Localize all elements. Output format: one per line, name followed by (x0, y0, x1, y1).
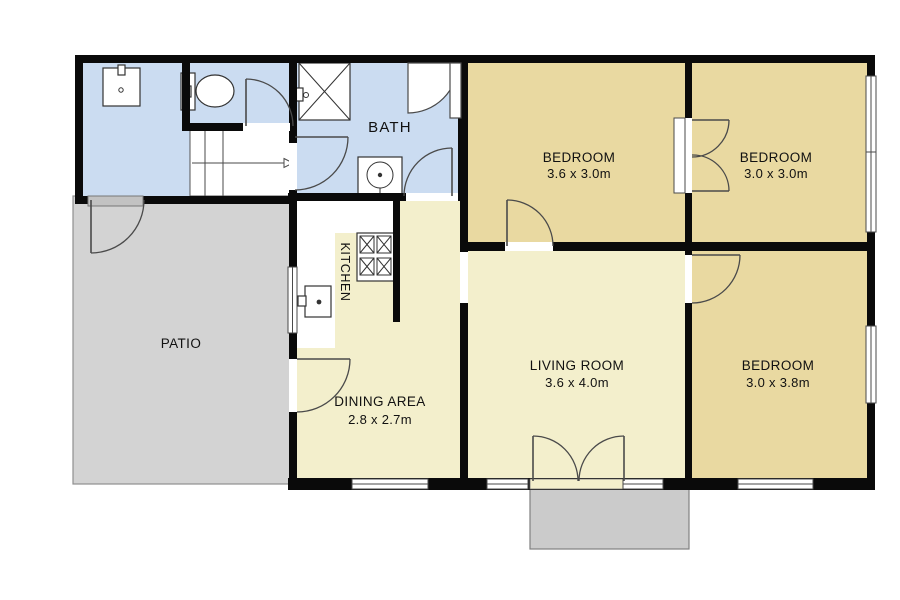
kitchen-label: KITCHEN (338, 242, 352, 301)
bedroom1-label: BEDROOM (543, 150, 616, 165)
bedroom3-side-window (866, 326, 876, 403)
living-window-right (623, 479, 663, 489)
porch-step (530, 487, 689, 549)
floor-plan-canvas: BATH BEDROOM 3.6 x 3.0m BEDROOM 3.0 x 3.… (0, 0, 900, 600)
laundry-door-step (88, 196, 143, 206)
bedroom2-label: BEDROOM (740, 150, 813, 165)
bedroom2-dimensions: 3.0 x 3.0m (744, 166, 808, 181)
shower-icon (296, 63, 350, 120)
bath-label: BATH (368, 119, 412, 136)
patio-label: PATIO (161, 336, 202, 351)
living-window-left (487, 479, 528, 489)
living-room-label: LIVING ROOM (530, 358, 624, 373)
floor-plan: BATH BEDROOM 3.6 x 3.0m BEDROOM 3.0 x 3.… (0, 0, 900, 600)
bedroom2-window (866, 76, 876, 232)
stove-icon (357, 233, 394, 281)
washing-machine-icon (358, 157, 402, 196)
dining-window (352, 479, 428, 489)
bedroom1-dimensions: 3.6 x 3.0m (547, 166, 611, 181)
kitchen-window (288, 267, 297, 333)
living-room-dimensions: 3.6 x 4.0m (545, 375, 609, 390)
kitchen-floor-column (294, 200, 335, 348)
dining-area-label: DINING AREA (334, 394, 425, 409)
dining-area-dimensions: 2.8 x 2.7m (348, 412, 412, 427)
dining-floor-left (294, 348, 335, 478)
bedroom3-bottom-window (738, 479, 813, 489)
laundry-sink-icon (103, 65, 140, 106)
hall-floor (400, 200, 460, 478)
bedroom3-label: BEDROOM (742, 358, 815, 373)
bedroom3-dimensions: 3.0 x 3.8m (746, 375, 810, 390)
